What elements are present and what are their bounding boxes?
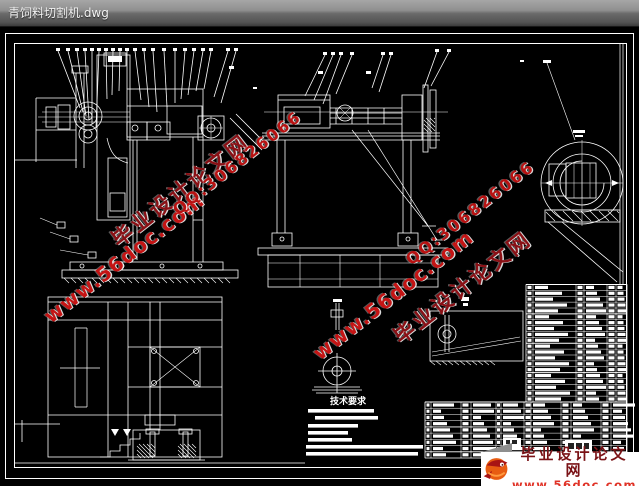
drawing-canvas[interactable]: 技术要求 bbox=[0, 0, 639, 486]
technical-notes: 技术要求 bbox=[306, 395, 423, 456]
window-title: 青饲料切割机.dwg bbox=[0, 0, 109, 26]
window-titlebar[interactable]: 青饲料切割机.dwg bbox=[0, 0, 639, 27]
section-detail bbox=[14, 420, 305, 463]
notes-title: 技术要求 bbox=[330, 395, 367, 407]
logo-site-url: www.56doc.com bbox=[512, 479, 637, 486]
cutter-detail-view bbox=[541, 44, 623, 284]
fish-icon bbox=[481, 453, 512, 485]
cad-viewer-window: 青饲料切割机.dwg bbox=[0, 0, 639, 486]
site-logo[interactable]: 毕业设计论文网 www.56doc.com bbox=[481, 452, 639, 486]
bom-table bbox=[526, 285, 627, 403]
logo-site-name: 毕业设计论文网 bbox=[512, 447, 637, 479]
